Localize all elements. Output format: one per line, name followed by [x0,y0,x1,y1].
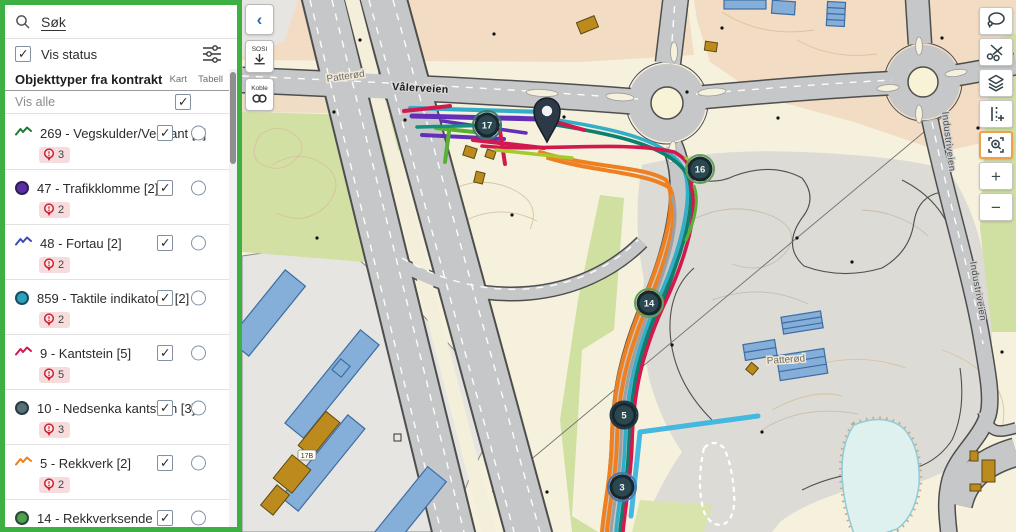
table-select-radio[interactable] [191,456,206,471]
object-type-icon [15,511,29,525]
sidebar-scrollbar-thumb[interactable] [230,72,236,164]
plus-icon: + [991,168,1001,185]
zoom-in-button[interactable]: + [979,162,1013,190]
filter-sliders-icon[interactable] [201,44,223,64]
svg-text:14: 14 [644,298,655,309]
table-select-radio[interactable] [191,236,206,251]
polyline-type-icon [15,235,32,247]
point-type-icon [15,401,29,415]
layers-button[interactable] [979,69,1013,97]
layers-icon [986,73,1006,93]
map-canvas[interactable]: 17 16 14 5 3 Patter [242,0,1016,532]
object-types-panel: Søk Vis status Objekttyper fra kontrakt … [0,0,242,532]
object-type-row-10: 10 - Nedsenka kantstein [3] 3 [5,390,229,445]
map-marker-17[interactable]: 17 [473,111,501,139]
collapse-panel-button[interactable]: ‹ [245,4,274,35]
object-type-label: 5 - Rekkverk [2] [40,456,131,471]
object-type-label: 269 - Vegskulder/Vegkant [3] [40,126,206,141]
building-label-17b: 17B [298,450,316,460]
map-marker-14[interactable]: 14 [635,289,663,317]
column-header-table: Tabell [198,74,223,85]
object-type-icon [15,234,32,252]
point-type-icon [15,511,29,525]
issue-pin-icon [43,258,55,272]
svg-text:16: 16 [695,164,706,175]
object-type-icon [15,454,32,472]
object-type-row-14: 14 - Rekkverksende [2] [5,500,229,527]
table-select-radio[interactable] [191,291,206,306]
status-badge: 2 [39,312,70,328]
issue-pin-icon [43,148,55,162]
column-header-map: Kart [170,74,187,85]
object-type-row-48: 48 - Fortau [2] 2 [5,225,229,280]
object-type-icon [15,401,29,415]
issue-pin-icon [43,368,55,382]
object-type-icon [15,291,29,305]
show-all-label: Vis alle [15,95,55,109]
object-type-label: 14 - Rekkverksende [2] [37,511,171,526]
measure-icon [986,104,1006,124]
vis-status-label: Vis status [41,47,97,62]
search-icon [15,14,31,30]
status-badge: 3 [39,422,70,438]
object-type-row-47: 47 - Trafikklomme [2] 2 [5,170,229,225]
vis-status-checkbox[interactable] [15,46,31,62]
object-type-label: 9 - Kantstein [5] [40,346,131,361]
chevron-left-icon: ‹ [257,12,263,28]
object-type-label: 48 - Fortau [2] [40,236,122,251]
table-select-radio[interactable] [191,126,206,141]
table-select-radio[interactable] [191,401,206,416]
download-icon [252,53,267,67]
status-badge: 2 [39,202,70,218]
status-filter-row: Vis status [5,39,237,69]
status-badge: 5 [39,367,70,383]
issue-pin-icon [43,203,55,217]
show-all-row: Vis alle [5,91,237,114]
point-type-icon [15,291,29,305]
map-visibility-checkbox[interactable] [157,510,173,526]
map-marker-16[interactable]: 16 [686,155,714,183]
cut-button[interactable] [979,38,1013,66]
object-type-row-5: 5 - Rekkverk [2] 2 [5,445,229,500]
koble-link-button[interactable]: Koble [245,78,274,111]
map-area: 17 16 14 5 3 Patter [242,0,1016,532]
table-select-radio[interactable] [191,346,206,361]
point-type-icon [15,181,29,195]
minus-icon: − [991,199,1001,216]
status-badge: 2 [39,257,70,273]
zoom-to-area-button[interactable] [979,131,1013,159]
object-type-list: 269 - Vegskulder/Vegkant [3] 3 [5,115,229,527]
svg-text:17B: 17B [301,453,314,460]
sosi-export-button[interactable]: SOSI [245,40,274,73]
map-visibility-checkbox[interactable] [157,290,173,306]
list-title: Objekttyper fra kontrakt [15,72,162,87]
object-type-icon [15,344,32,362]
issue-pin-icon [43,423,55,437]
map-visibility-checkbox[interactable] [157,345,173,361]
svg-text:5: 5 [621,410,627,421]
object-type-icon [15,181,29,195]
sidebar-scrollbar [229,69,237,527]
status-badge: 2 [39,477,70,493]
zoom-area-icon [986,135,1006,155]
polyline-type-icon [15,455,32,467]
lasso-select-button[interactable] [979,7,1013,35]
map-left-buttons: ‹ SOSI Koble [245,4,274,111]
object-type-label: 47 - Trafikklomme [2] [37,181,158,196]
svg-text:3: 3 [619,482,624,493]
map-visibility-checkbox[interactable] [157,125,173,141]
table-select-radio[interactable] [191,511,206,526]
object-type-icon [15,124,32,142]
issue-pin-icon [43,313,55,327]
map-visibility-checkbox[interactable] [157,455,173,471]
object-type-row-9: 9 - Kantstein [5] 5 [5,335,229,390]
table-select-radio[interactable] [191,181,206,196]
list-header: Objekttyper fra kontrakt Kart Tabell [5,69,237,91]
lasso-icon [985,11,1007,31]
map-visibility-checkbox[interactable] [157,400,173,416]
link-icon [251,92,268,105]
map-marker-3[interactable]: 3 [608,473,636,501]
status-badge: 3 [39,147,70,163]
map-visibility-checkbox[interactable] [157,180,173,196]
search-input[interactable]: Søk [41,14,66,30]
polyline-type-icon [15,345,32,357]
issue-pin-icon [43,478,55,492]
map-visibility-checkbox[interactable] [157,235,173,251]
map-toolbar: + − [979,7,1013,221]
measure-button[interactable] [979,100,1013,128]
scissors-icon [985,42,1007,62]
polyline-type-icon [15,125,32,137]
map-marker-5[interactable]: 5 [611,402,638,429]
object-type-row-859: 859 - Taktile indikatorer [2] 2 [5,280,229,335]
zoom-out-button[interactable]: − [979,193,1013,221]
search-row: Søk [5,5,237,39]
app-window: Søk Vis status Objekttyper fra kontrakt … [0,0,1016,532]
object-type-row-269: 269 - Vegskulder/Vegkant [3] 3 [5,115,229,170]
svg-text:17: 17 [482,120,493,131]
show-all-checkbox[interactable] [175,94,191,110]
